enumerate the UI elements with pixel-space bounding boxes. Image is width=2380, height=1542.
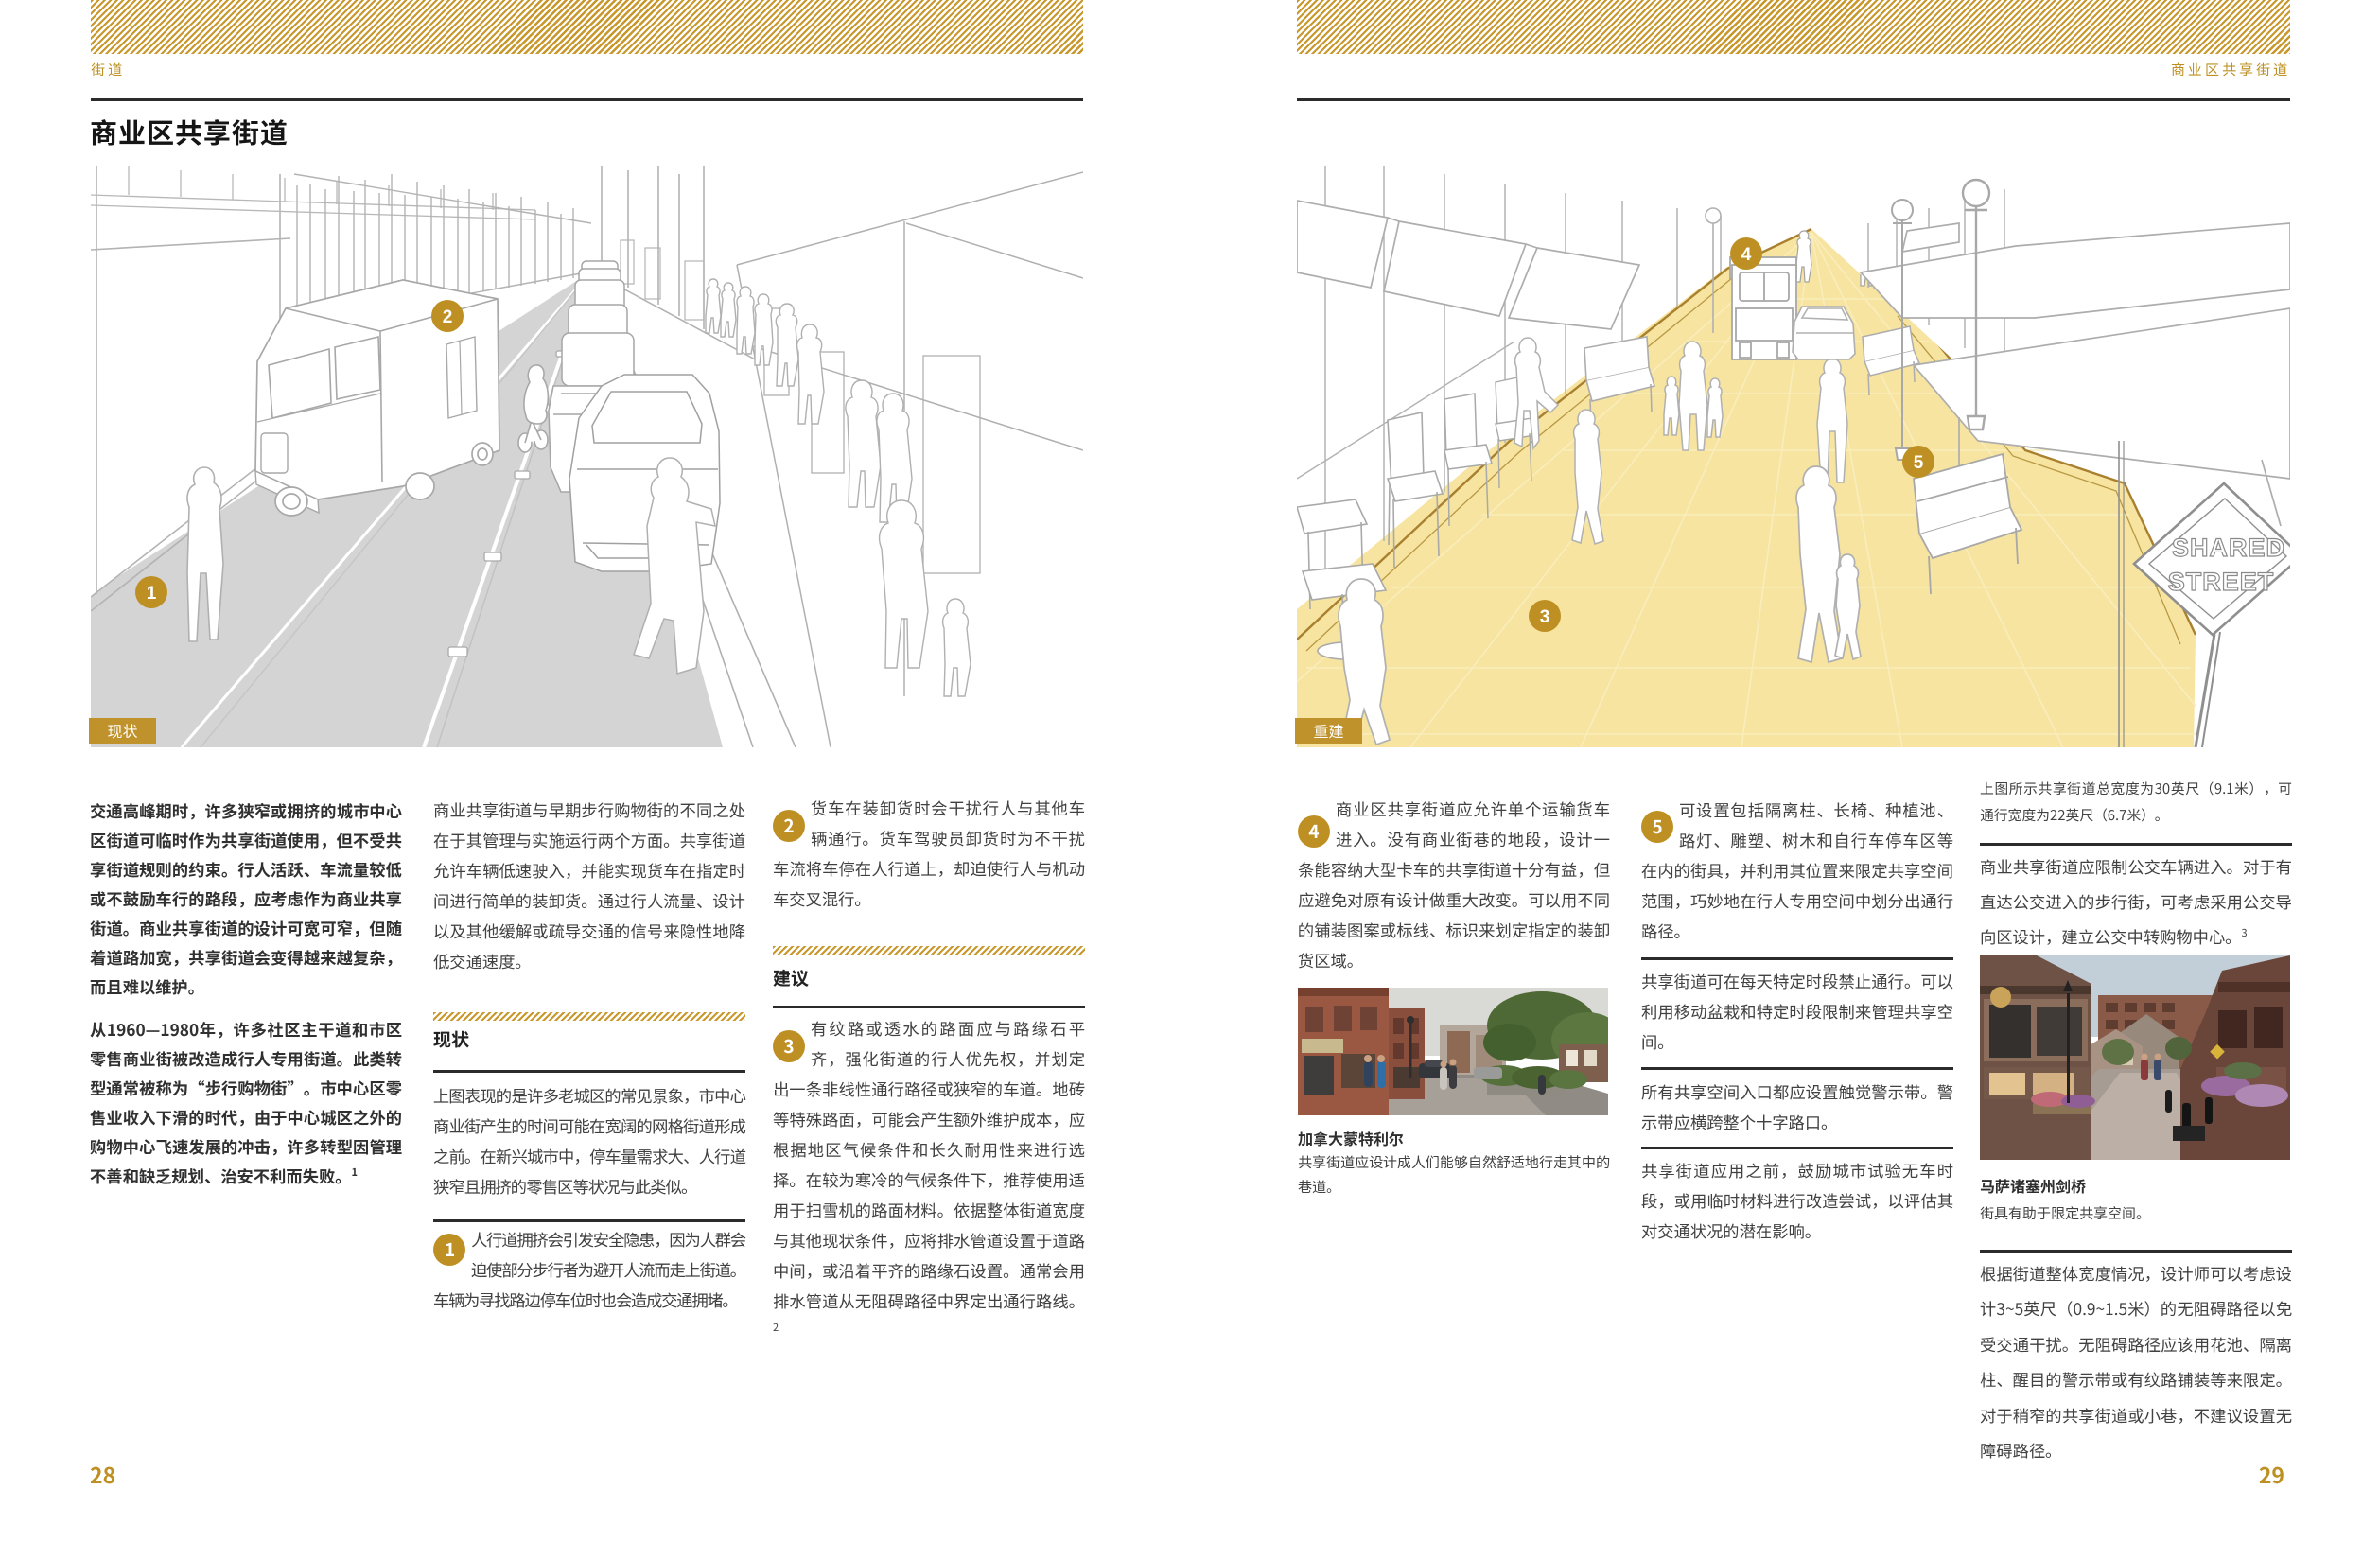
svg-text:SHARED: SHARED xyxy=(2172,534,2285,562)
svg-text:4: 4 xyxy=(1741,245,1752,265)
svg-text:3: 3 xyxy=(1540,607,1550,627)
svg-text:STREET: STREET xyxy=(2168,568,2275,596)
svg-text:2: 2 xyxy=(443,307,453,327)
svg-text:5: 5 xyxy=(1914,453,1924,473)
svg-text:1: 1 xyxy=(147,584,157,604)
